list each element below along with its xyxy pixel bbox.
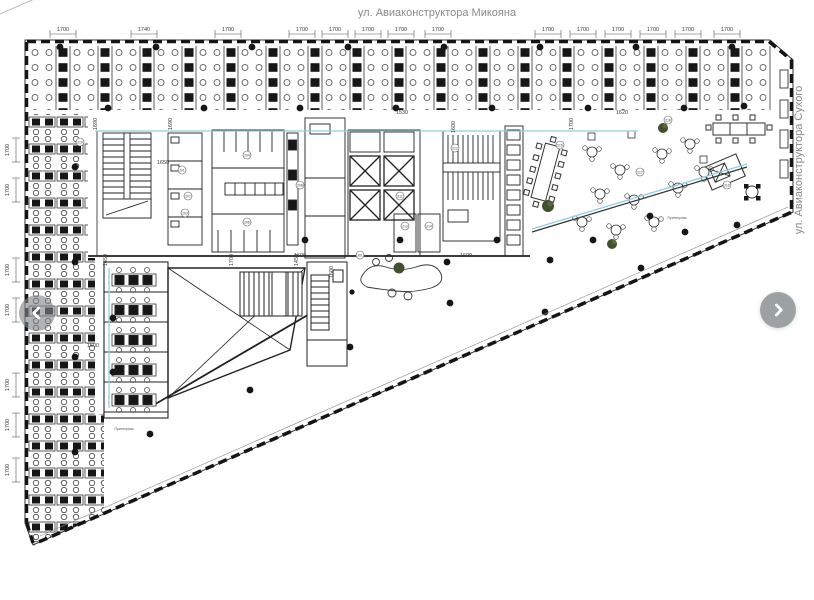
chevron-right-icon — [768, 300, 788, 320]
svg-text:206: 206 — [244, 220, 250, 224]
svg-text:1700: 1700 — [612, 27, 624, 33]
chevron-left-icon — [27, 303, 47, 323]
svg-text:1700: 1700 — [647, 27, 659, 33]
svg-text:1700: 1700 — [5, 379, 11, 391]
service-column-south — [307, 262, 347, 366]
lounge-area — [349, 255, 441, 301]
core-zone — [88, 112, 530, 258]
svg-text:Принтерная: Принтерная — [115, 427, 134, 431]
prev-image-button[interactable] — [19, 295, 55, 331]
street-label-top: ул. Авиаконструктора Микояна — [358, 7, 517, 19]
svg-text:1600: 1600 — [87, 343, 99, 349]
svg-text:301: 301 — [357, 253, 363, 257]
next-image-button[interactable] — [760, 292, 796, 328]
svg-text:1700: 1700 — [432, 27, 444, 33]
svg-text:1700: 1700 — [569, 118, 575, 130]
svg-text:1700: 1700 — [229, 254, 235, 266]
svg-text:1700: 1700 — [57, 27, 69, 33]
svg-text:1600: 1600 — [329, 266, 335, 278]
top-dimensions: 1700174017001700170017001700170017001700… — [50, 27, 740, 38]
svg-text:1700: 1700 — [5, 304, 11, 316]
svg-text:1700: 1700 — [329, 27, 341, 33]
svg-text:218: 218 — [665, 118, 671, 122]
svg-text:204: 204 — [244, 153, 250, 157]
top-desk-band — [30, 46, 772, 110]
svg-text:207: 207 — [185, 194, 191, 198]
left-dimensions: 1700170017001700170017001700 — [5, 138, 20, 482]
svg-text:1700: 1700 — [5, 419, 11, 431]
svg-text:219: 219 — [724, 183, 730, 187]
svg-text:216: 216 — [557, 143, 563, 147]
svg-text:1450: 1450 — [294, 254, 300, 266]
svg-text:203: 203 — [182, 211, 188, 215]
svg-text:1450: 1450 — [103, 254, 109, 266]
street-label-right: ул. Авиаконструктора Сухого — [793, 86, 805, 234]
floor-plan-viewer: ЖК Лица 17001700170017001770170017001700… — [0, 0, 814, 600]
svg-text:213: 213 — [402, 224, 408, 228]
svg-text:201: 201 — [179, 168, 185, 172]
svg-text:1700: 1700 — [5, 184, 11, 196]
svg-text:212: 212 — [452, 146, 458, 150]
svg-text:1700: 1700 — [296, 27, 308, 33]
svg-text:208: 208 — [297, 183, 303, 187]
svg-text:1700: 1700 — [682, 27, 694, 33]
svg-text:214: 214 — [426, 224, 432, 228]
svg-text:1740: 1740 — [138, 27, 150, 33]
svg-text:1700: 1700 — [542, 27, 554, 33]
svg-text:1700: 1700 — [5, 264, 11, 276]
svg-text:1700: 1700 — [5, 144, 11, 156]
svg-text:1700: 1700 — [222, 27, 234, 33]
svg-text:1700: 1700 — [5, 464, 11, 476]
svg-text:1650: 1650 — [157, 160, 169, 166]
svg-text:1700: 1700 — [362, 27, 374, 33]
svg-text:Принтерная: Принтерная — [668, 216, 687, 220]
svg-text:1700: 1700 — [577, 27, 589, 33]
svg-text:1600: 1600 — [460, 253, 472, 259]
svg-text:210: 210 — [77, 140, 83, 144]
svg-text:211: 211 — [397, 194, 403, 198]
svg-text:1690: 1690 — [93, 118, 99, 130]
svg-text:1690: 1690 — [168, 118, 174, 130]
building-interior — [0, 0, 793, 542]
svg-text:1620: 1620 — [616, 110, 628, 116]
svg-text:1530: 1530 — [396, 110, 408, 116]
feature-staircase — [240, 272, 302, 316]
floor-plan-drawing: ЖК Лица 17001700170017001770170017001700… — [0, 0, 814, 600]
svg-text:1700: 1700 — [395, 27, 407, 33]
svg-text:1600: 1600 — [451, 121, 457, 133]
svg-text:1700: 1700 — [721, 27, 733, 33]
svg-text:217: 217 — [637, 170, 643, 174]
